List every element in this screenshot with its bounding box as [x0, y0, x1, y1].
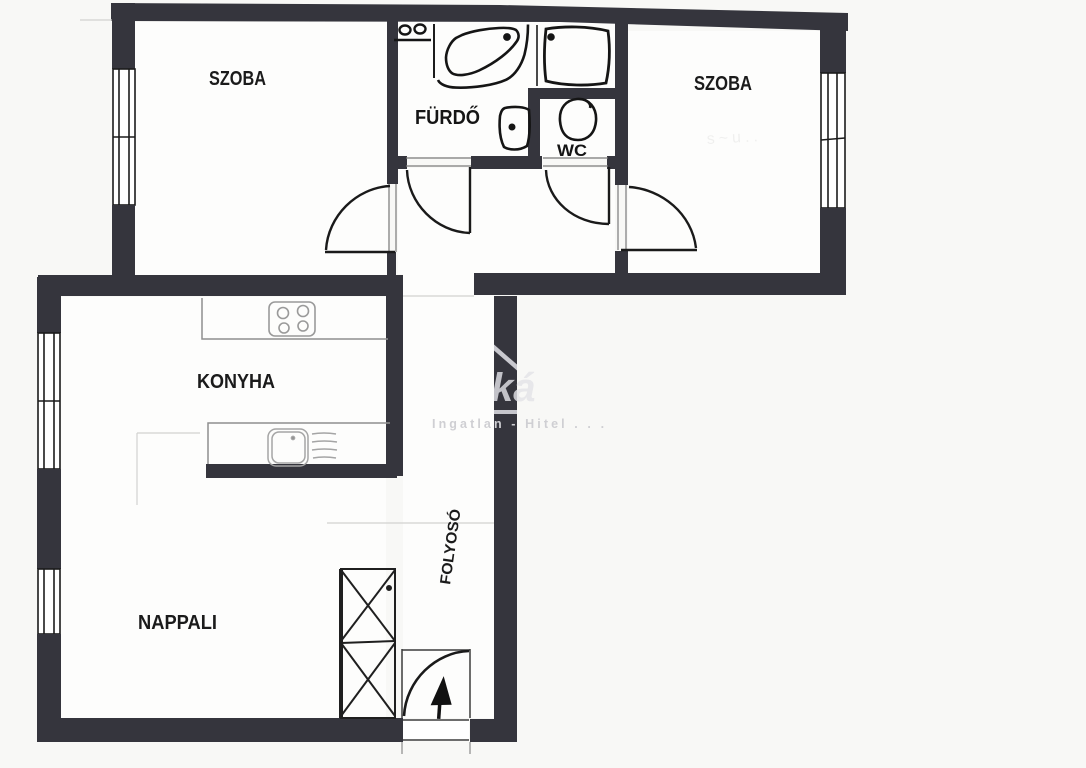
svg-text:s~u..: s~u..: [706, 128, 762, 148]
svg-text:WC: WC: [557, 141, 587, 160]
svg-text:Ingatlan - Hitel . . .: Ingatlan - Hitel . . .: [432, 417, 607, 431]
svg-text:SZOBA: SZOBA: [209, 68, 266, 90]
svg-text:KONYHA: KONYHA: [197, 371, 275, 393]
svg-text:FÜRDŐ: FÜRDŐ: [415, 106, 480, 129]
svg-text:NAPPALI: NAPPALI: [138, 612, 217, 634]
svg-text:SZOBA: SZOBA: [694, 73, 752, 95]
